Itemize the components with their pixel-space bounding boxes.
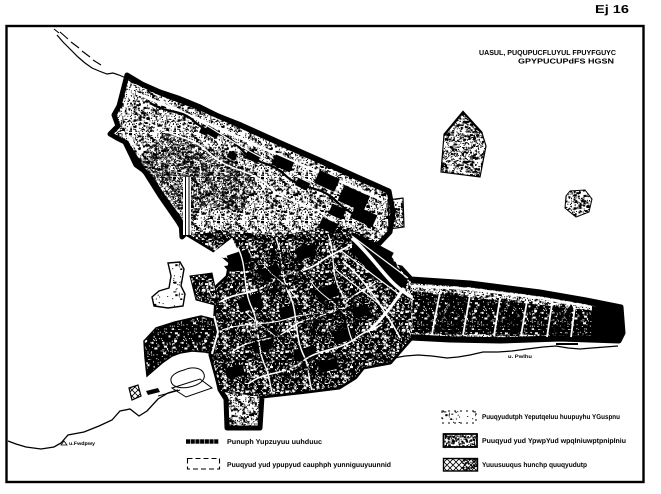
svg-text:Ej 16: Ej 16 [595,4,629,16]
svg-text:Puuqyud yud ypupyud cauphph yu: Puuqyud yud ypupyud cauphph yunniguuyuun… [227,461,391,469]
svg-text:GPYPUCUPdFS HGSN: GPYPUCUPdFS HGSN [518,57,614,66]
svg-text:Puuqyudutph YeputqeIuu huupuyh: Puuqyudutph YeputqeIuu huupuyhu YGuspnu [482,413,620,421]
svg-text:u.Fwdpwy: u.Fwdpwy [69,441,95,447]
svg-text:Puuqyud yud YpwpYud wpqIniuwpt: Puuqyud yud YpwpYud wpqIniuwptpnipIniu [482,437,626,445]
svg-text:Punuph Yupzuyuu uuhduuc: Punuph Yupzuyuu uuhduuc [227,438,322,446]
svg-text:Yuuusuuqus hunchp quuqyudutp: Yuuusuuqus hunchp quuqyudutp [482,461,587,469]
svg-text:u. Pwlhu: u. Pwlhu [508,354,532,360]
